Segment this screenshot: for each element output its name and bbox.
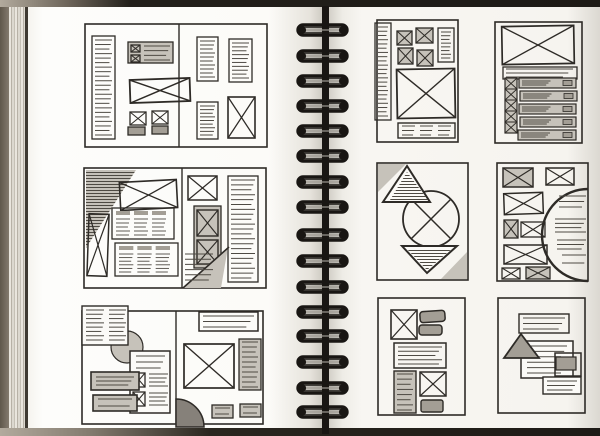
sketch-page-middle-left [377,163,468,280]
spiral-coil [298,357,347,367]
spiral-coil [298,282,347,292]
spiral-coil [298,202,347,212]
sketch-spread-bottom-left [82,306,263,427]
notebook-scan [0,0,600,436]
spiral-coil [298,51,347,61]
spiral-coil [298,25,347,35]
spiral-coil [298,151,347,161]
sketch-page-bottom-right [498,298,585,413]
spiral-coil [298,177,347,187]
spiral-coil [298,126,347,136]
sketch-page-top-left [375,20,458,142]
sketch-layer [0,0,600,436]
sketch-page-bottom-left [378,298,465,415]
spiral-spine [322,6,329,434]
spiral-coil [298,101,347,111]
spiral-coil [298,256,347,266]
sketch-spread-middle-left [84,168,266,288]
sketch-page-middle-right [497,163,588,281]
sketch-page-top-right [495,22,582,143]
spiral-coil [298,307,347,317]
spiral-coil [298,407,347,417]
spiral-coil [298,331,347,341]
spiral-binding [298,6,347,434]
spiral-coil [298,383,347,393]
sketch-spread-top-left [85,24,267,147]
spiral-coil [298,76,347,86]
spiral-coil [298,230,347,240]
